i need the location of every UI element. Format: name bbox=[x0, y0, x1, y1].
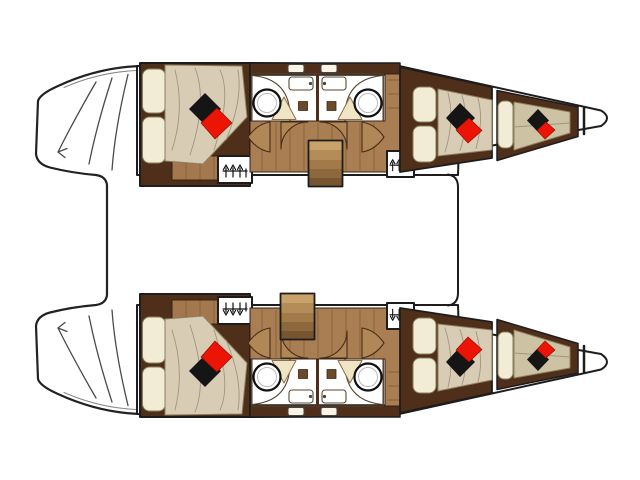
head-pillow bbox=[498, 101, 513, 148]
stairs-upper-hull bbox=[308, 140, 343, 187]
forepeak-berth bbox=[497, 91, 584, 161]
catamaran-layout-plan bbox=[0, 0, 640, 480]
transom-step-curve bbox=[58, 82, 96, 152]
deck-hatch bbox=[288, 65, 304, 73]
head-pillow bbox=[143, 69, 166, 113]
deck-hatch bbox=[321, 65, 337, 73]
head-pillow bbox=[143, 117, 166, 163]
faucet bbox=[323, 82, 326, 85]
shower-mixer bbox=[327, 102, 336, 111]
shower-mixer bbox=[299, 102, 308, 111]
stairs-lower-hull bbox=[280, 293, 315, 340]
forward-crossbeam-line bbox=[448, 175, 458, 306]
transom-step-curve bbox=[112, 75, 128, 171]
stern-platform-outline bbox=[36, 66, 140, 414]
transom-steps bbox=[58, 75, 128, 171]
hull-lower-mirrored bbox=[58, 294, 607, 417]
bathroom-divider-wall bbox=[316, 74, 319, 121]
faucet bbox=[309, 82, 312, 85]
floor-plan-canvas bbox=[0, 0, 640, 480]
transom-step-curve bbox=[89, 78, 112, 164]
head-pillow bbox=[413, 87, 436, 122]
wardrobe-aft bbox=[218, 156, 252, 183]
head-pillow bbox=[413, 126, 436, 162]
stern-platform bbox=[36, 66, 140, 414]
